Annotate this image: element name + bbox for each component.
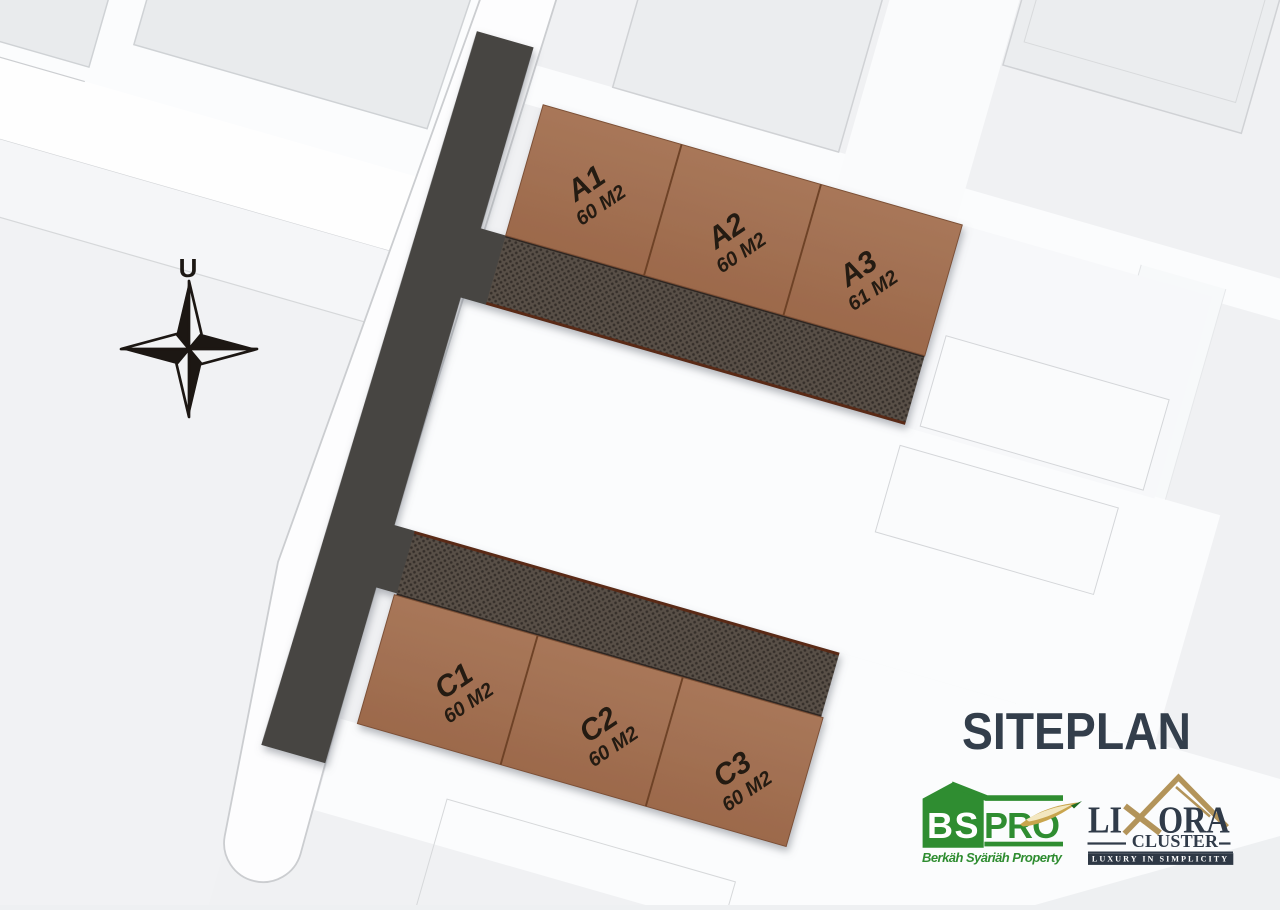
svg-text:SITEPLAN: SITEPLAN — [962, 703, 1191, 761]
svg-text:BS: BS — [927, 805, 980, 846]
svg-text:Berkäh Syäriäh Property: Berkäh Syäriäh Property — [922, 850, 1063, 865]
svg-text:LI: LI — [1088, 799, 1122, 841]
svg-text:CLUSTER: CLUSTER — [1132, 831, 1219, 851]
svg-text:U: U — [179, 253, 198, 283]
svg-text:LUXURY IN SIMPLICITY: LUXURY IN SIMPLICITY — [1092, 854, 1229, 863]
